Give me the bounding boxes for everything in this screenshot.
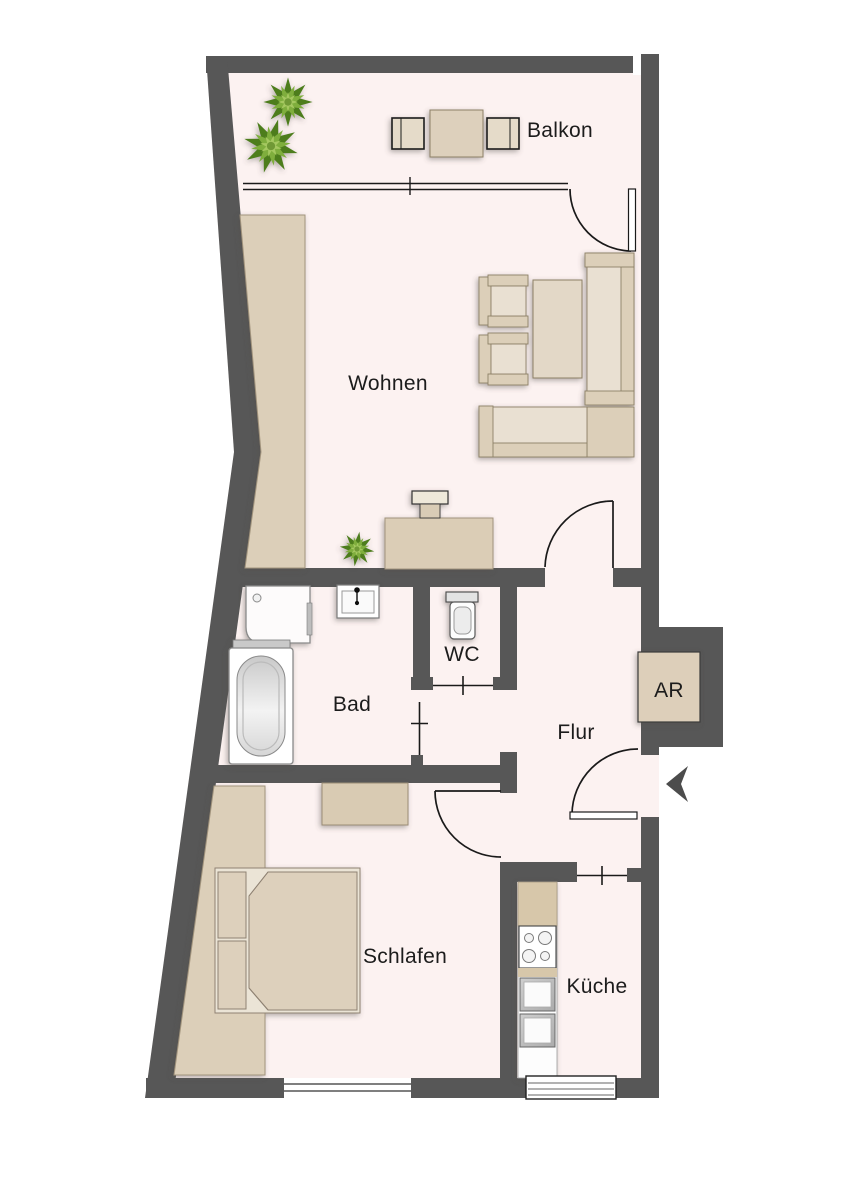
room-label-balkon: Balkon bbox=[527, 119, 593, 142]
plant-icon bbox=[263, 77, 312, 126]
floorplan-page: Balkon Wohnen Bad WC Flur AR Schlafen Kü… bbox=[0, 0, 848, 1200]
coffee-table bbox=[533, 280, 582, 378]
balcony-chair-right bbox=[487, 118, 519, 149]
wall-schlafen-kueche bbox=[500, 862, 517, 1078]
room-label-bad: Bad bbox=[333, 693, 371, 716]
washbasin bbox=[337, 585, 379, 618]
armchair bbox=[479, 333, 528, 385]
room-label-kueche: Küche bbox=[566, 975, 627, 998]
wall-kueche-jamb bbox=[627, 868, 659, 882]
wall-wc-jamb-left bbox=[411, 677, 433, 690]
stove bbox=[519, 926, 556, 968]
shower bbox=[246, 586, 312, 647]
sofa-corner bbox=[587, 407, 634, 457]
sofa-bottom bbox=[479, 406, 587, 457]
armchair bbox=[479, 275, 528, 327]
balcony-table bbox=[430, 110, 483, 157]
wall-wc-jamb-right bbox=[493, 677, 517, 690]
wall-flur-stub bbox=[500, 752, 517, 793]
balcony-chair-left bbox=[392, 118, 424, 149]
tv-sideboard bbox=[385, 518, 493, 569]
bathtub bbox=[229, 640, 293, 764]
bedroom-window bbox=[284, 1078, 411, 1098]
wall-top bbox=[206, 56, 633, 73]
wall-wc-right bbox=[500, 587, 517, 679]
toilet bbox=[446, 592, 478, 639]
room-label-flur: Flur bbox=[557, 721, 594, 744]
dresser bbox=[322, 783, 408, 825]
door-frame-gap bbox=[633, 52, 641, 75]
wall-right-stub bbox=[641, 747, 659, 755]
room-label-wc: WC bbox=[444, 643, 480, 666]
wall-right-lower bbox=[641, 817, 659, 1098]
room-label-schlafen: Schlafen bbox=[363, 945, 447, 968]
double-bed bbox=[215, 868, 360, 1013]
wall-right-upper bbox=[641, 54, 659, 627]
wall-wohnen-bottom-stub bbox=[613, 568, 641, 587]
kitchen-window bbox=[526, 1076, 616, 1099]
floorplan-svg: Balkon Wohnen Bad WC Flur AR Schlafen Kü… bbox=[0, 0, 848, 1200]
wall-ar-bottom bbox=[641, 722, 723, 747]
room-label-wohnen: Wohnen bbox=[348, 372, 428, 395]
wall-wohnen-bottom bbox=[240, 568, 545, 587]
sofa-right bbox=[585, 253, 634, 405]
kitchen-unit bbox=[518, 882, 557, 1078]
wall-kueche-top bbox=[500, 862, 577, 882]
room-label-ar: AR bbox=[654, 679, 684, 702]
wall-bad-wc-divider bbox=[413, 587, 430, 679]
wall-bad-bottom bbox=[212, 765, 502, 783]
